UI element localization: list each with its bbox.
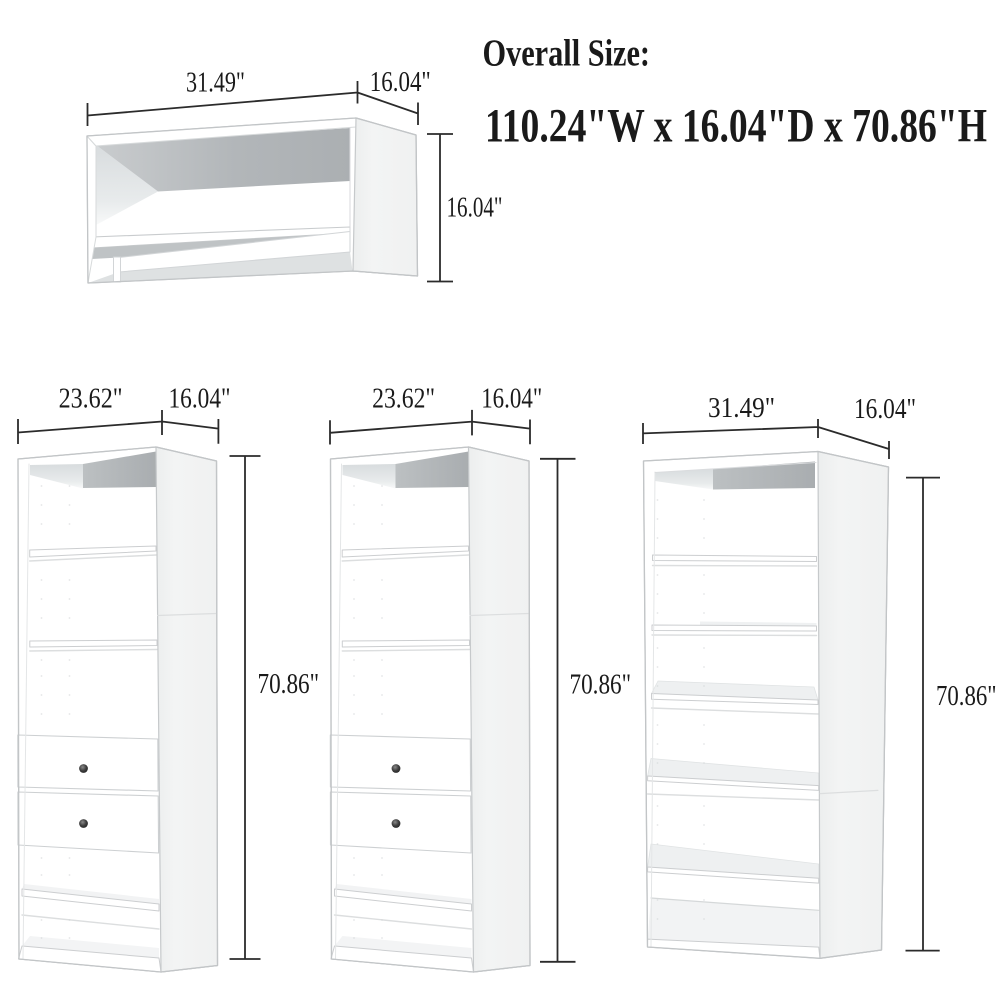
svg-text:23.62": 23.62" xyxy=(59,384,123,415)
svg-text:16.04": 16.04" xyxy=(854,394,916,425)
svg-text:70.86": 70.86" xyxy=(570,670,632,701)
svg-text:70.86": 70.86" xyxy=(936,681,997,712)
svg-text:16.04": 16.04" xyxy=(370,67,431,98)
svg-text:16.04": 16.04" xyxy=(481,383,542,414)
svg-text:Overall Size:: Overall Size: xyxy=(483,33,651,75)
svg-text:70.86": 70.86" xyxy=(258,669,320,700)
svg-text:31.49": 31.49" xyxy=(708,393,775,424)
svg-text:110.24"W x 16.04"D x 70.86"H: 110.24"W x 16.04"D x 70.86"H xyxy=(485,100,987,153)
svg-text:23.62": 23.62" xyxy=(372,383,435,414)
svg-text:16.04": 16.04" xyxy=(447,193,503,224)
svg-text:31.49": 31.49" xyxy=(186,68,245,99)
svg-text:16.04": 16.04" xyxy=(169,384,231,415)
